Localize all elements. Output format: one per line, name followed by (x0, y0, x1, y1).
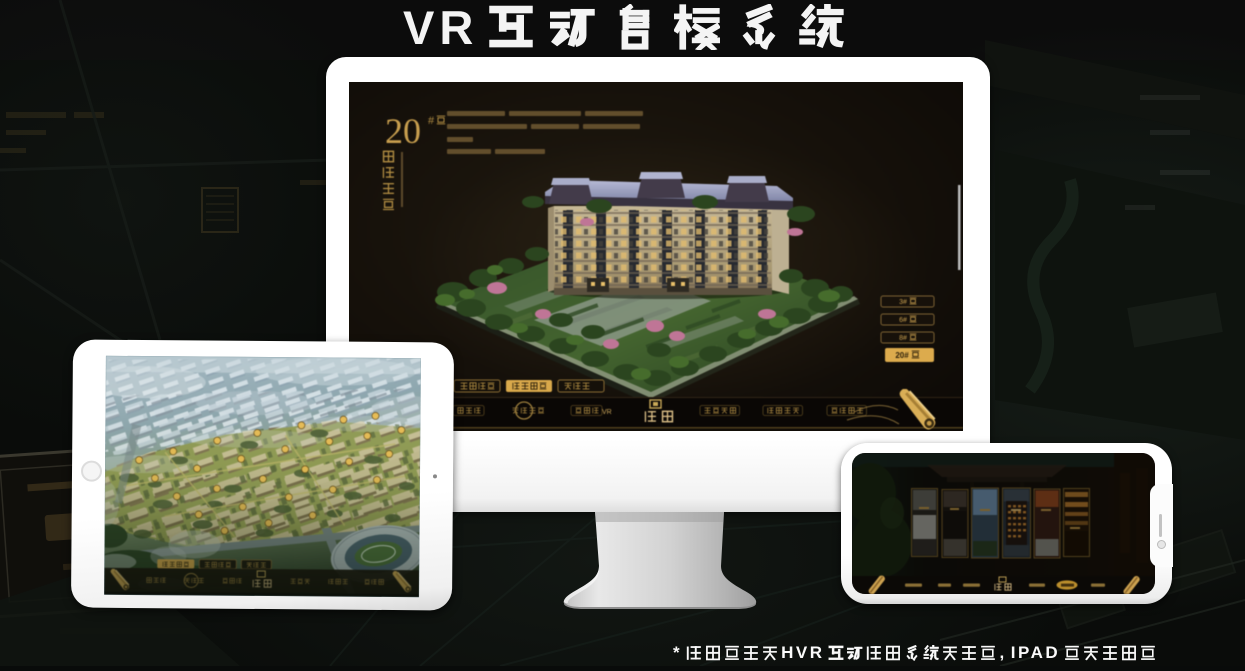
svg-text:20: 20 (385, 111, 421, 151)
svg-text:#: # (428, 115, 435, 127)
svg-text:VR: VR (602, 409, 612, 416)
svg-text:20#: 20# (895, 351, 909, 360)
svg-text:8#: 8# (899, 335, 907, 342)
svg-text:3#: 3# (899, 299, 907, 306)
svg-text:6#: 6# (899, 317, 907, 324)
